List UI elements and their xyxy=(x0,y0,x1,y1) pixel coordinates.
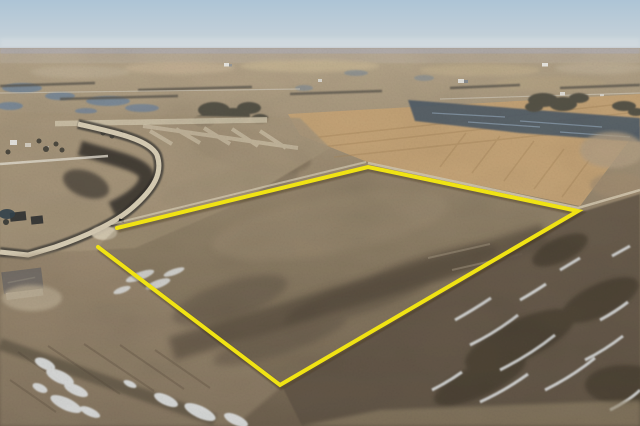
aerial-photo-canvas xyxy=(0,0,640,426)
aerial-photo xyxy=(0,0,640,426)
horizon-haze xyxy=(0,38,640,48)
sky xyxy=(0,0,640,53)
photo-grain-texture xyxy=(0,48,640,426)
texture-overlays xyxy=(0,48,640,426)
